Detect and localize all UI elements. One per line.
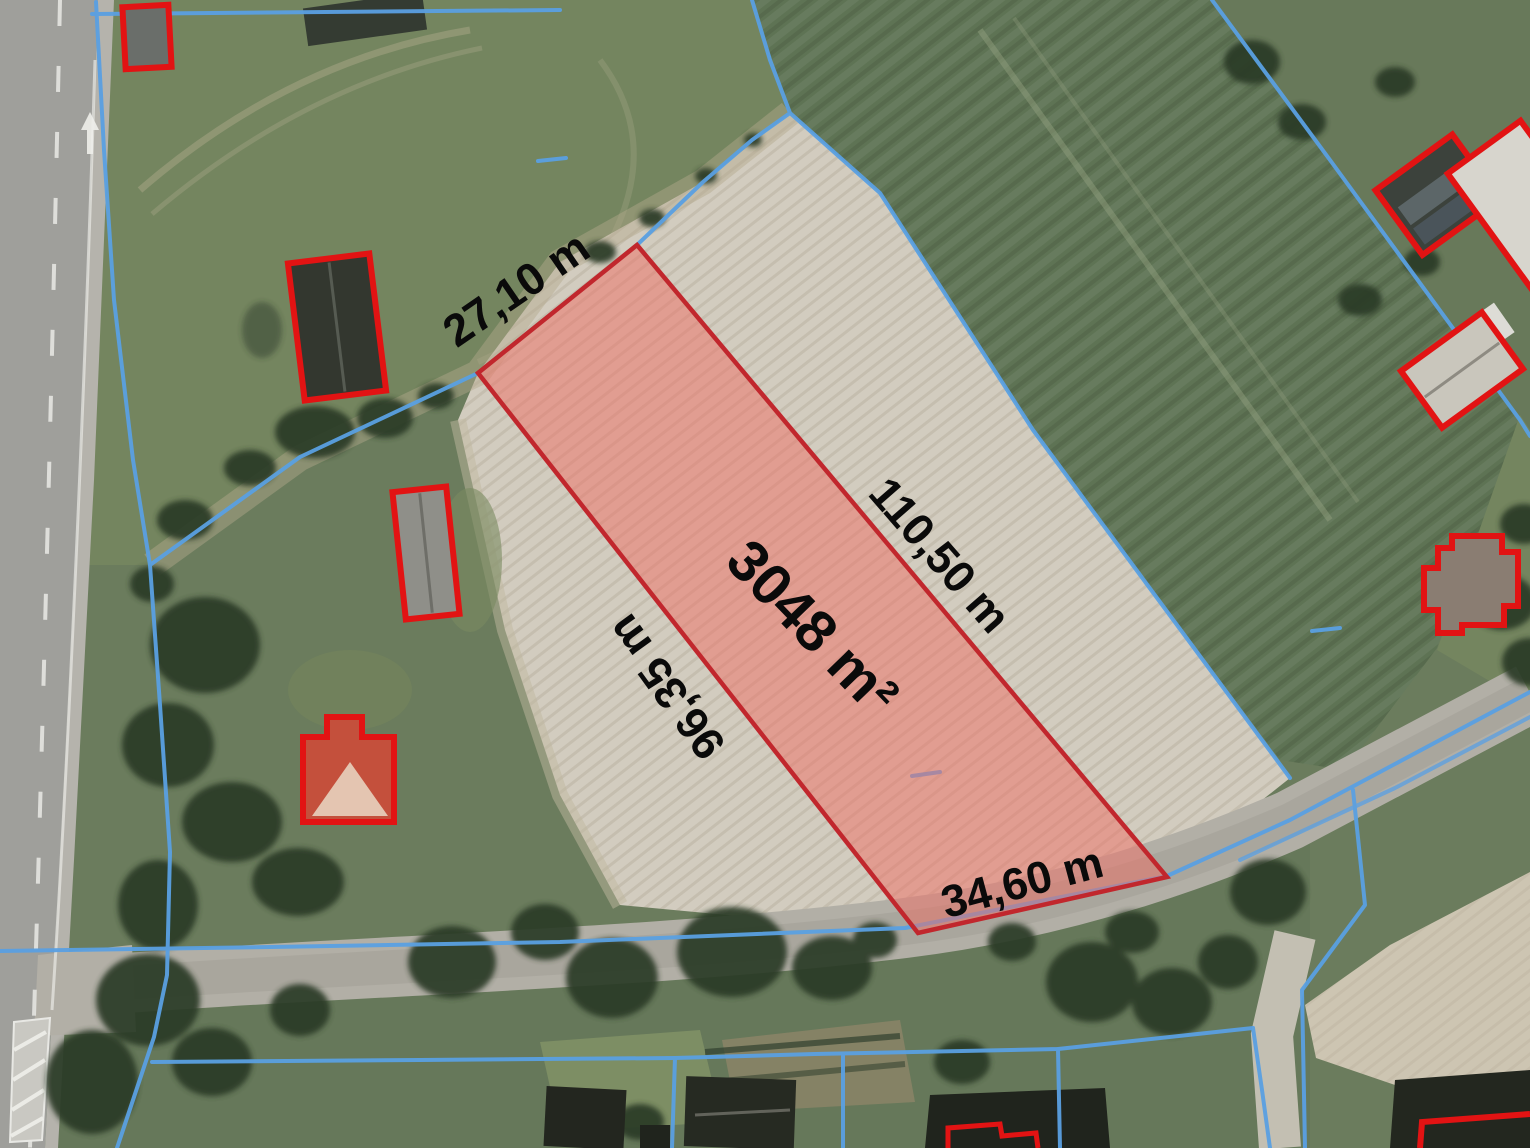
cadastral-line — [1302, 790, 1365, 1148]
map-canvas[interactable]: 27,10 m 110,50 m 3048 m² 96,35 m 34,60 m — [0, 0, 1530, 1148]
road-hatched-island — [10, 1018, 50, 1142]
cadastral-line — [1058, 1049, 1060, 1148]
building-outline — [122, 5, 171, 69]
road-side-narrow — [1272, 935, 1295, 1148]
building-outline-red-roof-house — [303, 717, 394, 822]
building-outline — [1424, 536, 1518, 633]
